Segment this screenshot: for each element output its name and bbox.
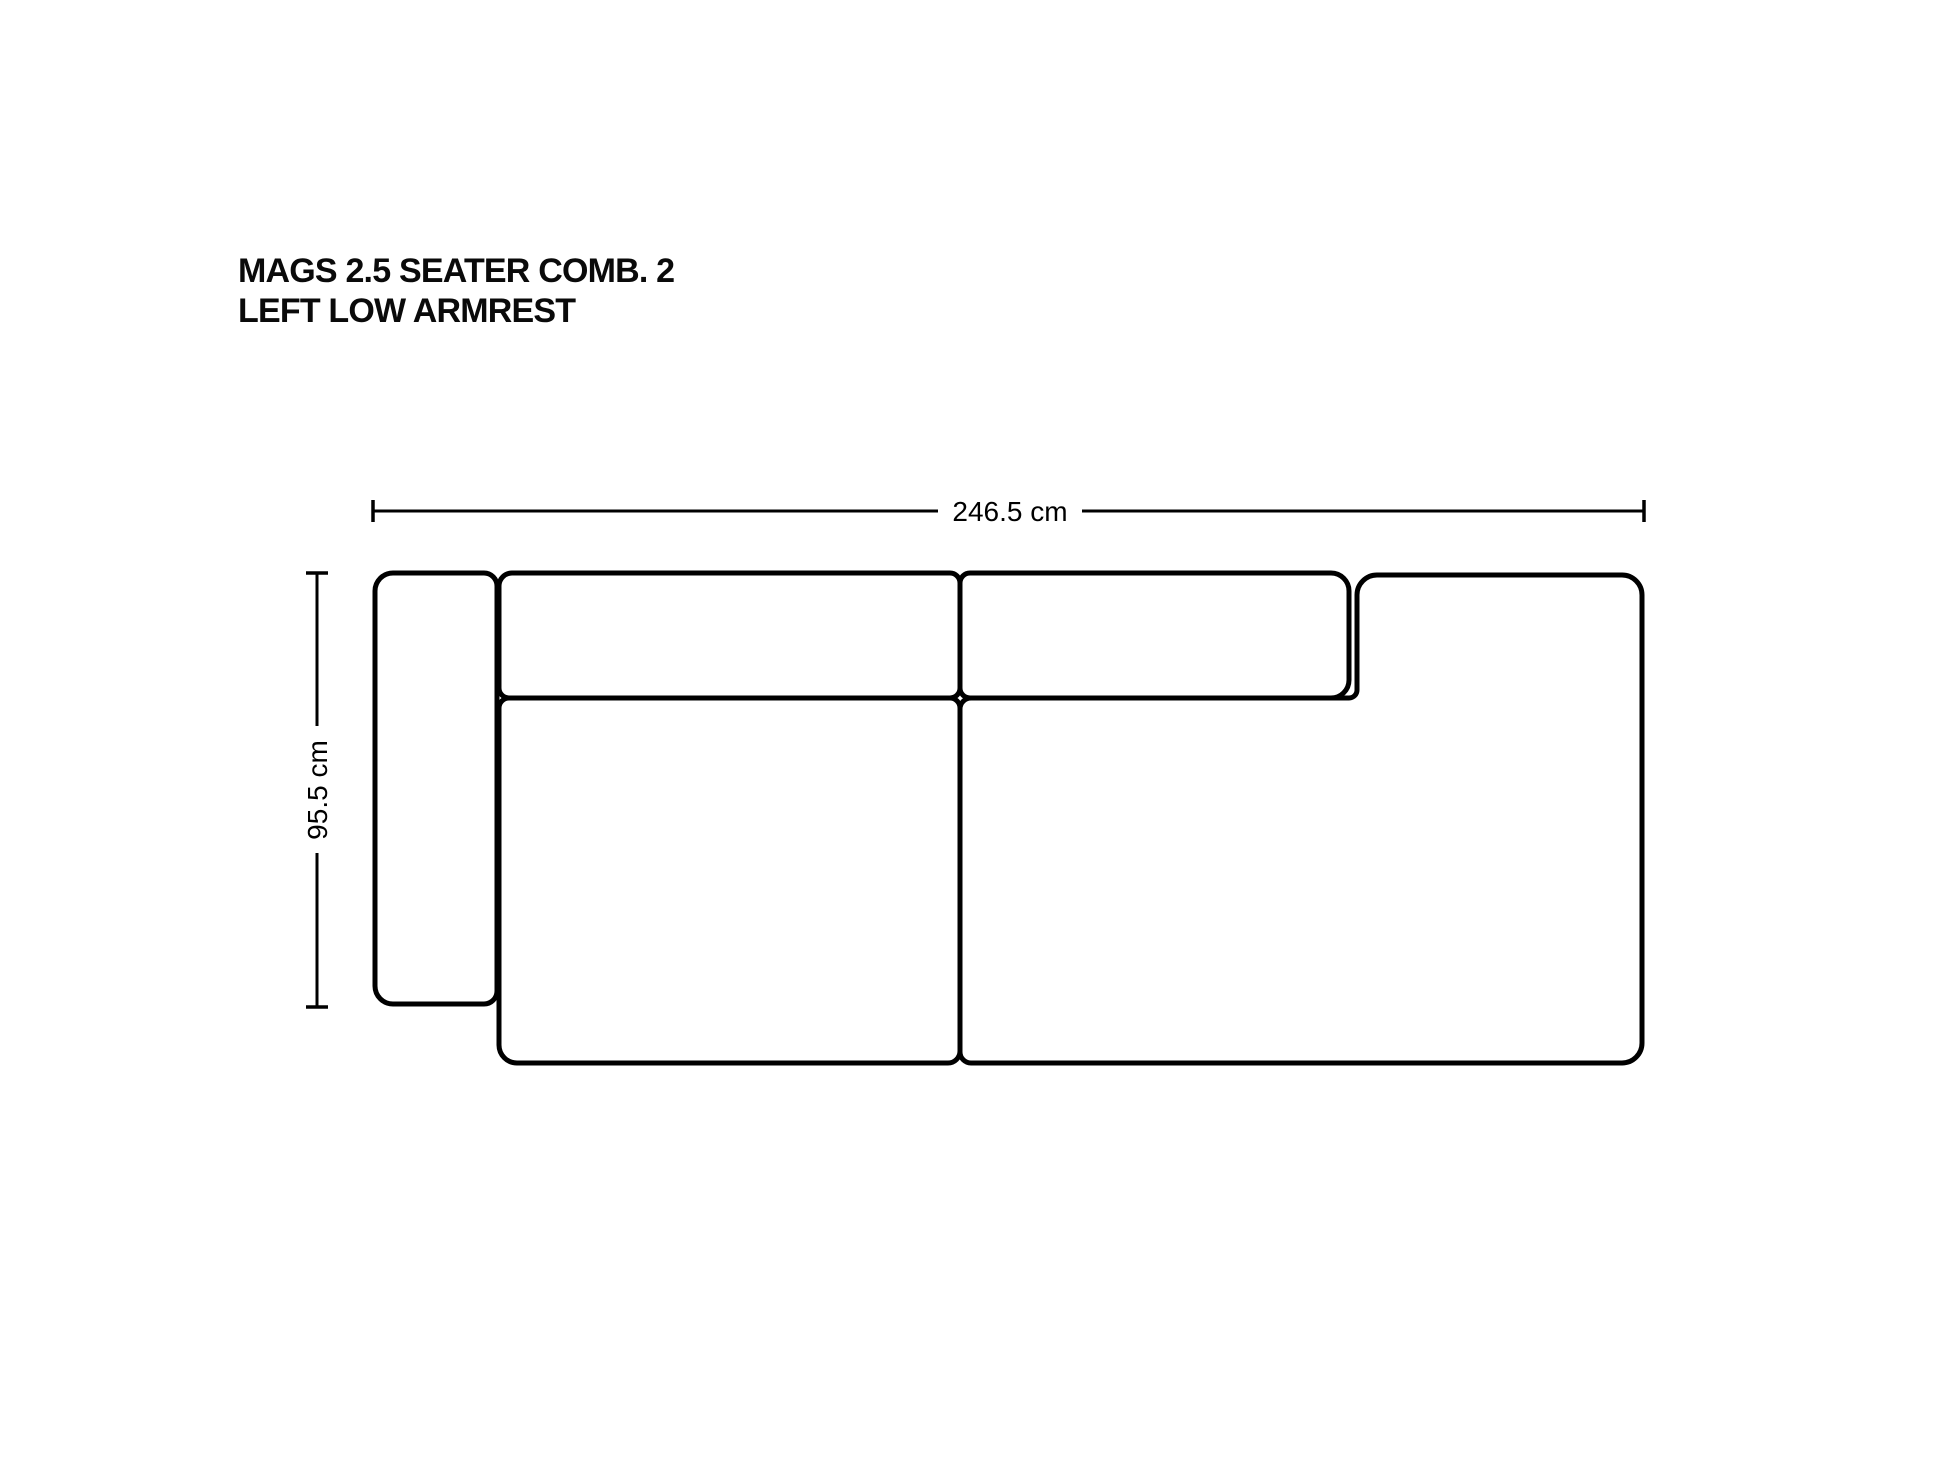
width-dimension: 246.5 cm — [373, 496, 1644, 527]
left-low-armrest-outline — [375, 573, 497, 1004]
left-seat-outline — [499, 698, 960, 1063]
sofa-modules — [375, 573, 1642, 1063]
width-dimension-label: 246.5 cm — [952, 496, 1067, 527]
diagram-canvas: MAGS 2.5 SEATER COMB. 2 LEFT LOW ARMREST… — [0, 0, 1946, 1464]
left-back-cushion-outline — [499, 573, 960, 698]
depth-dimension-label: 95.5 cm — [302, 740, 333, 840]
sofa-plan-diagram: 246.5 cm 95.5 cm — [0, 0, 1946, 1464]
right-back-cushion-outline — [960, 573, 1349, 698]
depth-dimension: 95.5 cm — [302, 573, 333, 1007]
